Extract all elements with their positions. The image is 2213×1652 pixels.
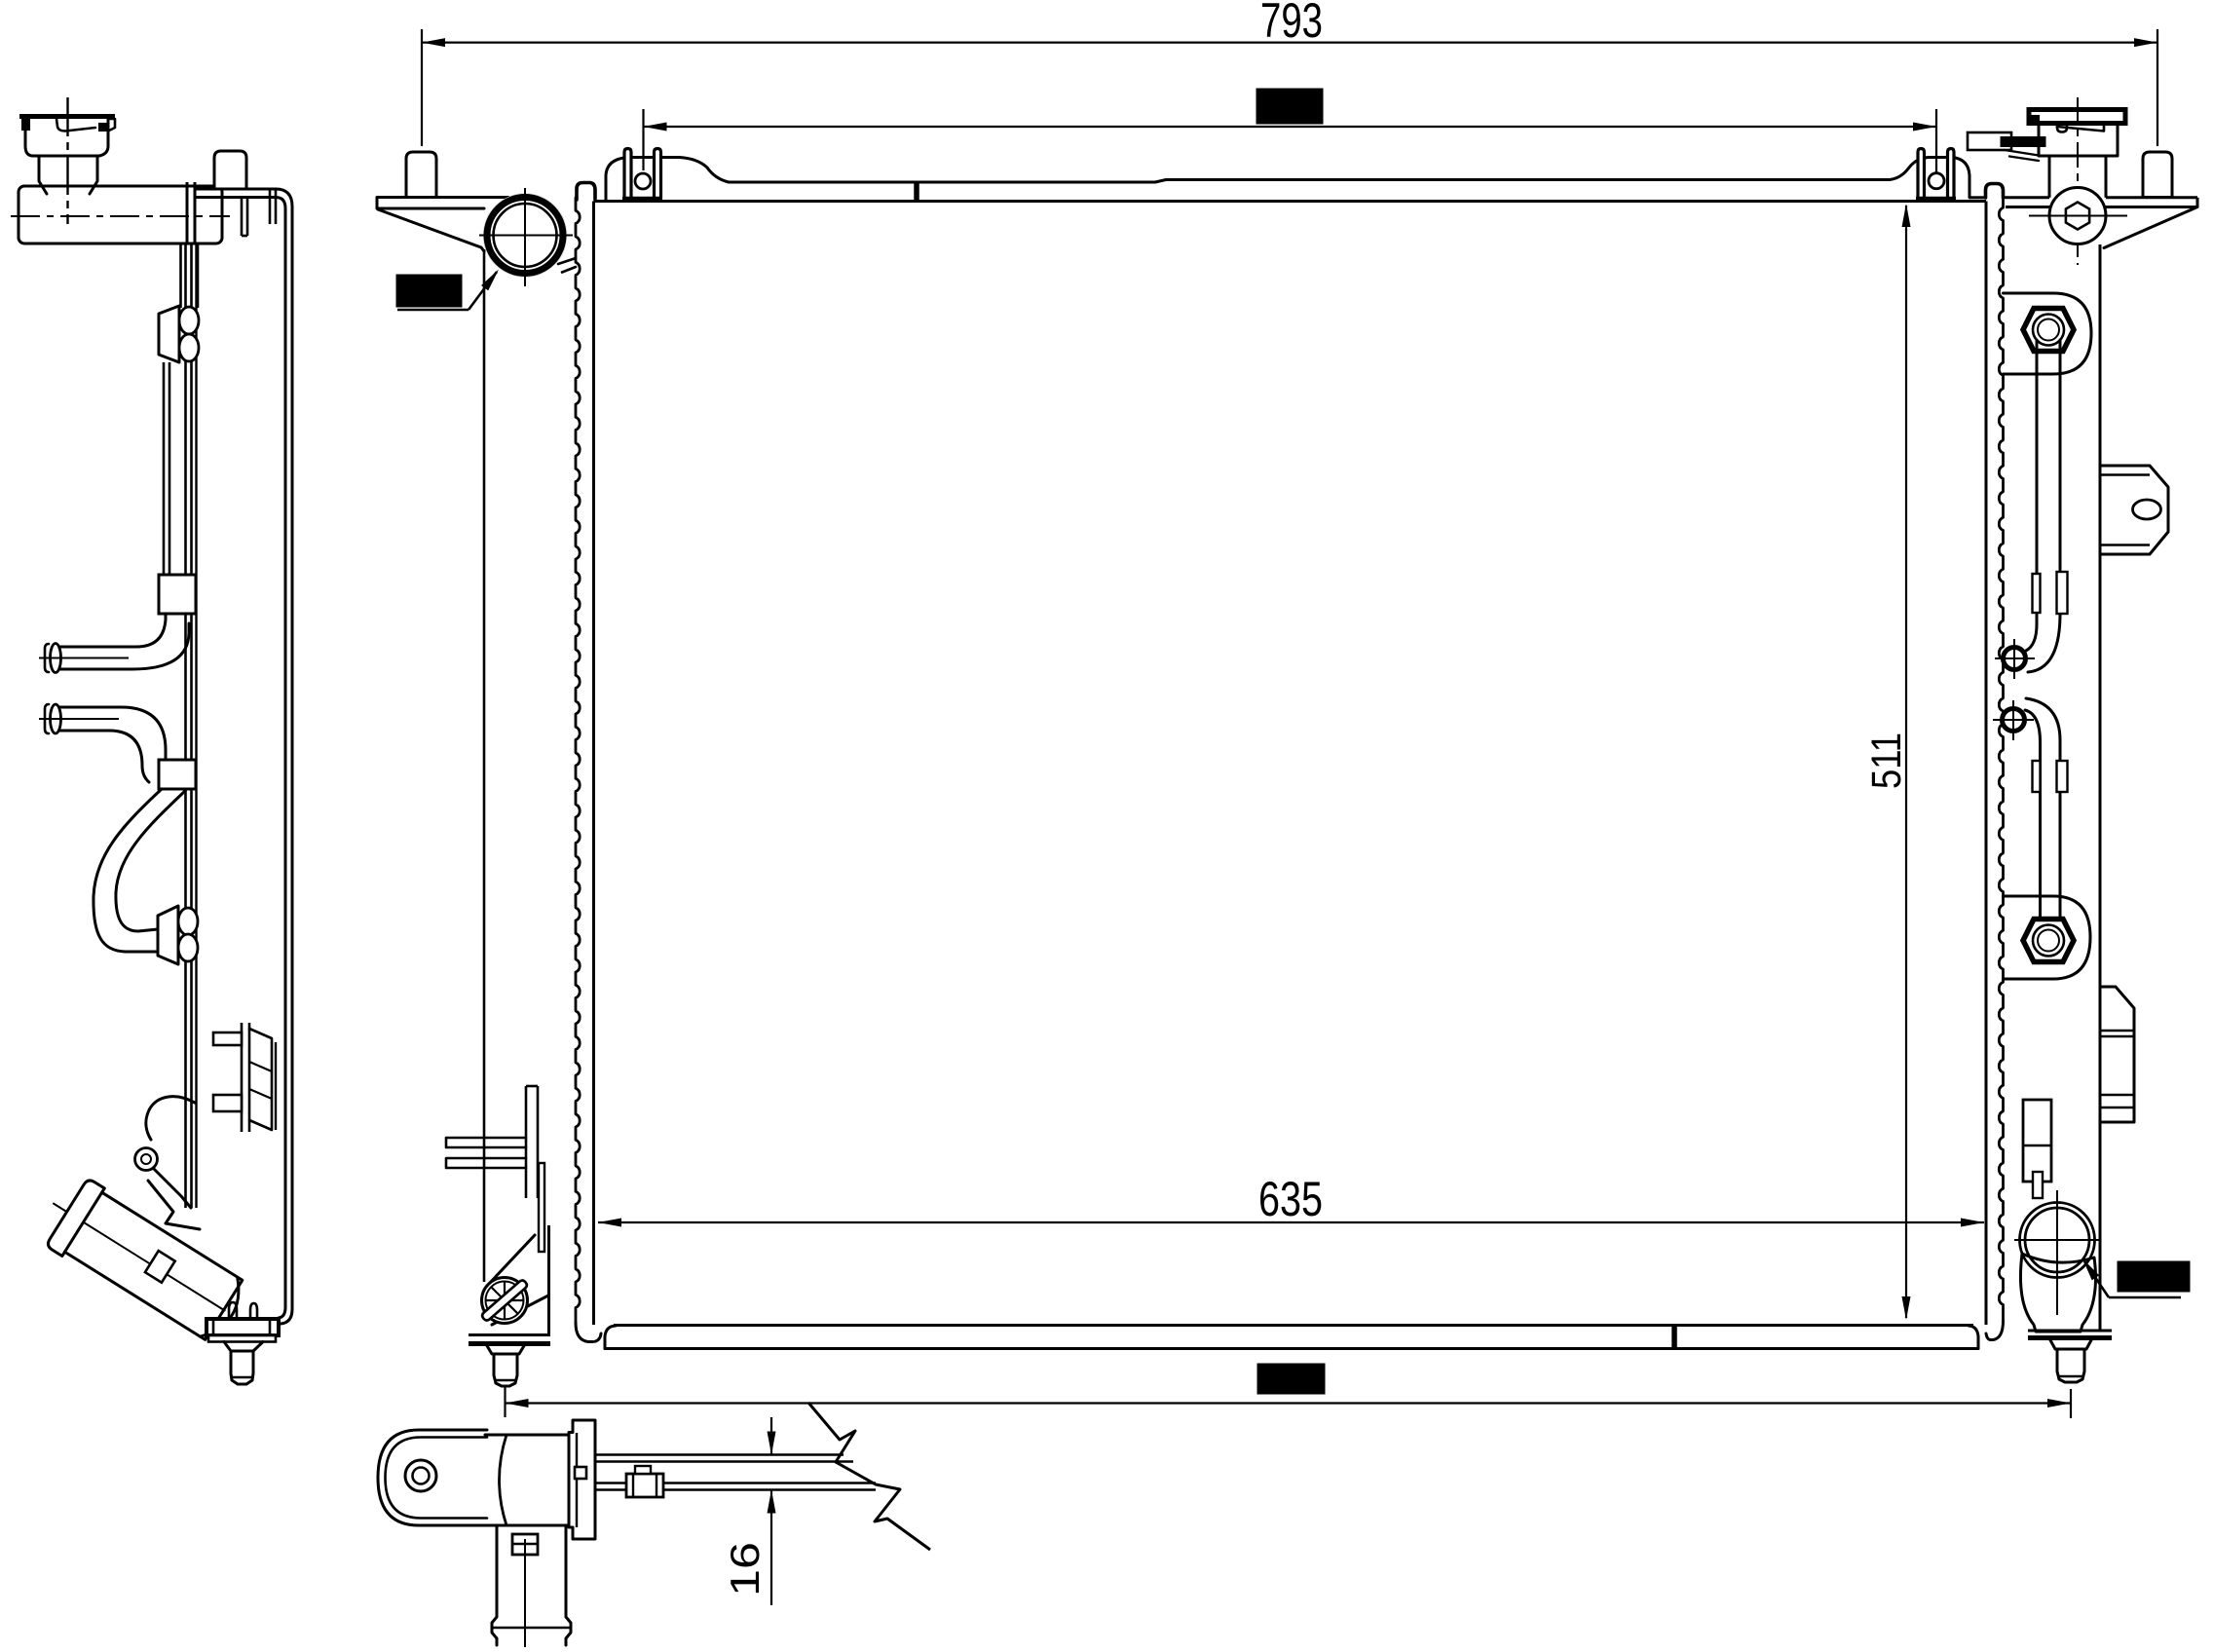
svg-text:16: 16 <box>722 1542 768 1596</box>
svg-text:511: 511 <box>1863 732 1910 789</box>
svg-text:793: 793 <box>1260 0 1323 48</box>
svg-text:635: 635 <box>1258 1172 1323 1226</box>
